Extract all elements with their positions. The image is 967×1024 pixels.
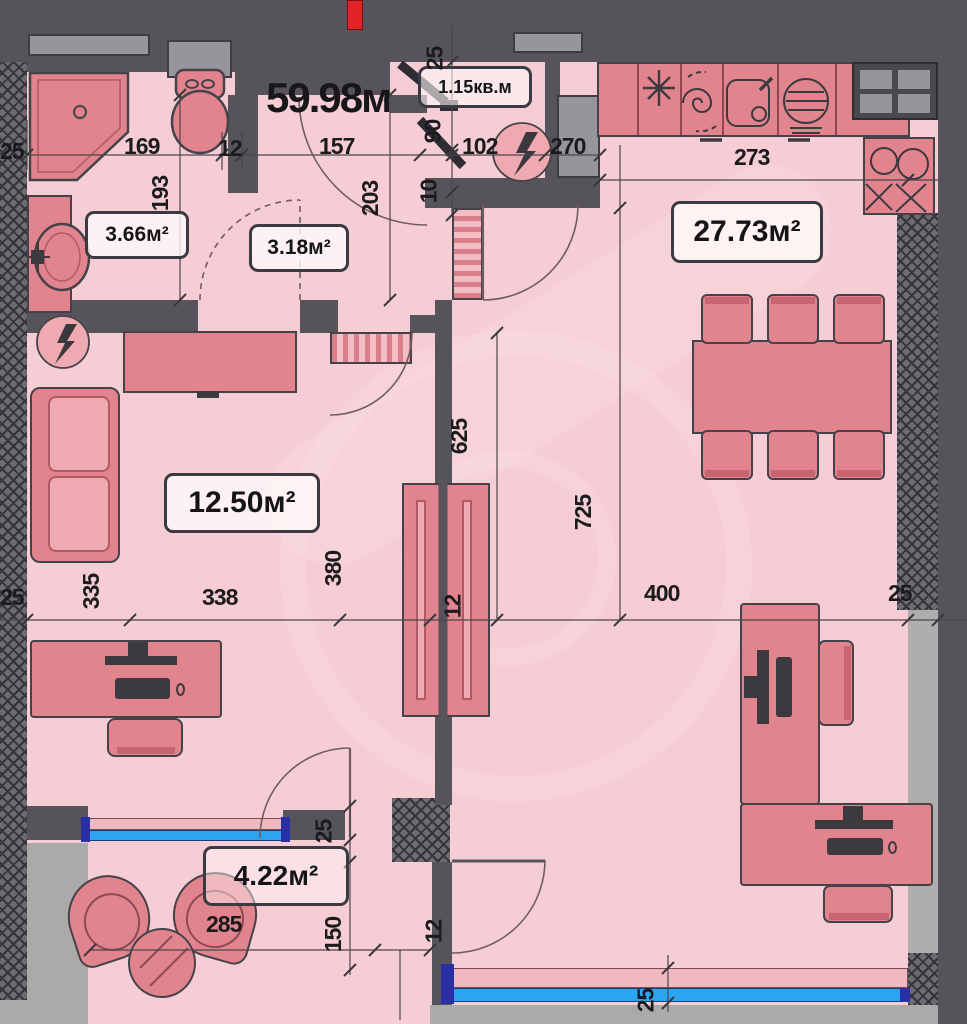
bedroom-area-label: 12.50м² xyxy=(164,473,320,533)
dim-193: 193 xyxy=(147,176,174,211)
dim-12-top: 12 xyxy=(218,135,242,162)
dim-12-balcony: 12 xyxy=(420,920,447,944)
dim-150: 150 xyxy=(320,917,347,952)
kitchen-symbols xyxy=(643,70,928,212)
dim-157: 157 xyxy=(319,133,354,160)
shower-icon xyxy=(30,73,128,180)
dim-10: 10 xyxy=(415,180,442,204)
closet-area-label: 1.15кв.м xyxy=(418,66,532,108)
dim-102: 102 xyxy=(462,133,497,160)
dim-203: 203 xyxy=(357,181,384,216)
dim-285: 285 xyxy=(206,911,241,938)
dim-335: 335 xyxy=(78,574,105,609)
dim-270: 270 xyxy=(550,133,585,160)
living-area-label: 27.73м² xyxy=(671,201,823,263)
dim-25-balcony-wall: 25 xyxy=(310,820,337,844)
dim-12-wall: 12 xyxy=(439,595,466,619)
dim-25-bottom-window: 25 xyxy=(632,989,659,1013)
dim-625: 625 xyxy=(446,419,473,454)
glass-marks xyxy=(140,936,188,986)
dim-725: 725 xyxy=(570,495,597,530)
dim-273: 273 xyxy=(734,144,769,171)
washbasin-icon xyxy=(28,224,89,290)
dim-169: 169 xyxy=(124,133,159,160)
dim-25-left-top: 25 xyxy=(0,138,24,165)
dim-90: 90 xyxy=(419,120,446,144)
floor-plan: 59.98м 1.15кв.м 3.66м² 3.18м² 27.73м² 12… xyxy=(0,0,967,1024)
dim-380: 380 xyxy=(320,551,347,586)
dim-400: 400 xyxy=(644,580,679,607)
dim-25-entry: 25 xyxy=(421,47,448,71)
total-area-label: 59.98м xyxy=(266,74,390,122)
hall-area-label: 3.18м² xyxy=(249,224,349,272)
balcony-area-label: 4.22м² xyxy=(203,846,349,906)
dim-338: 338 xyxy=(202,584,237,611)
dim-25-left-mid: 25 xyxy=(0,584,24,611)
dimension-lines xyxy=(0,25,967,1020)
dim-25-right: 25 xyxy=(888,580,912,607)
bathroom-area-label: 3.66м² xyxy=(85,211,189,259)
